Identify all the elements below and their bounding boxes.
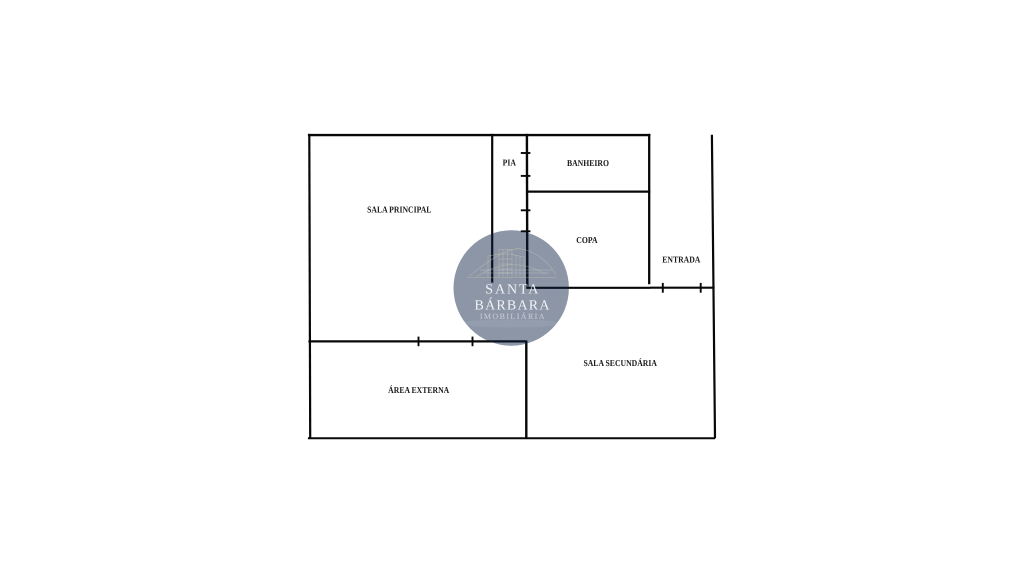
svg-text:BANHEIRO: BANHEIRO <box>567 158 609 168</box>
svg-text:ÁREA EXTERNA: ÁREA EXTERNA <box>388 385 450 395</box>
svg-text:SALA PRINCIPAL: SALA PRINCIPAL <box>367 205 431 215</box>
svg-text:ENTRADA: ENTRADA <box>662 254 701 264</box>
svg-text:SALA SECUNDÁRIA: SALA SECUNDÁRIA <box>583 358 657 368</box>
svg-text:COPA: COPA <box>576 235 598 245</box>
svg-text:SANTA: SANTA <box>485 283 540 298</box>
svg-text:PIA: PIA <box>503 158 517 168</box>
svg-text:IMOBILIÁRIA: IMOBILIÁRIA <box>480 312 546 321</box>
